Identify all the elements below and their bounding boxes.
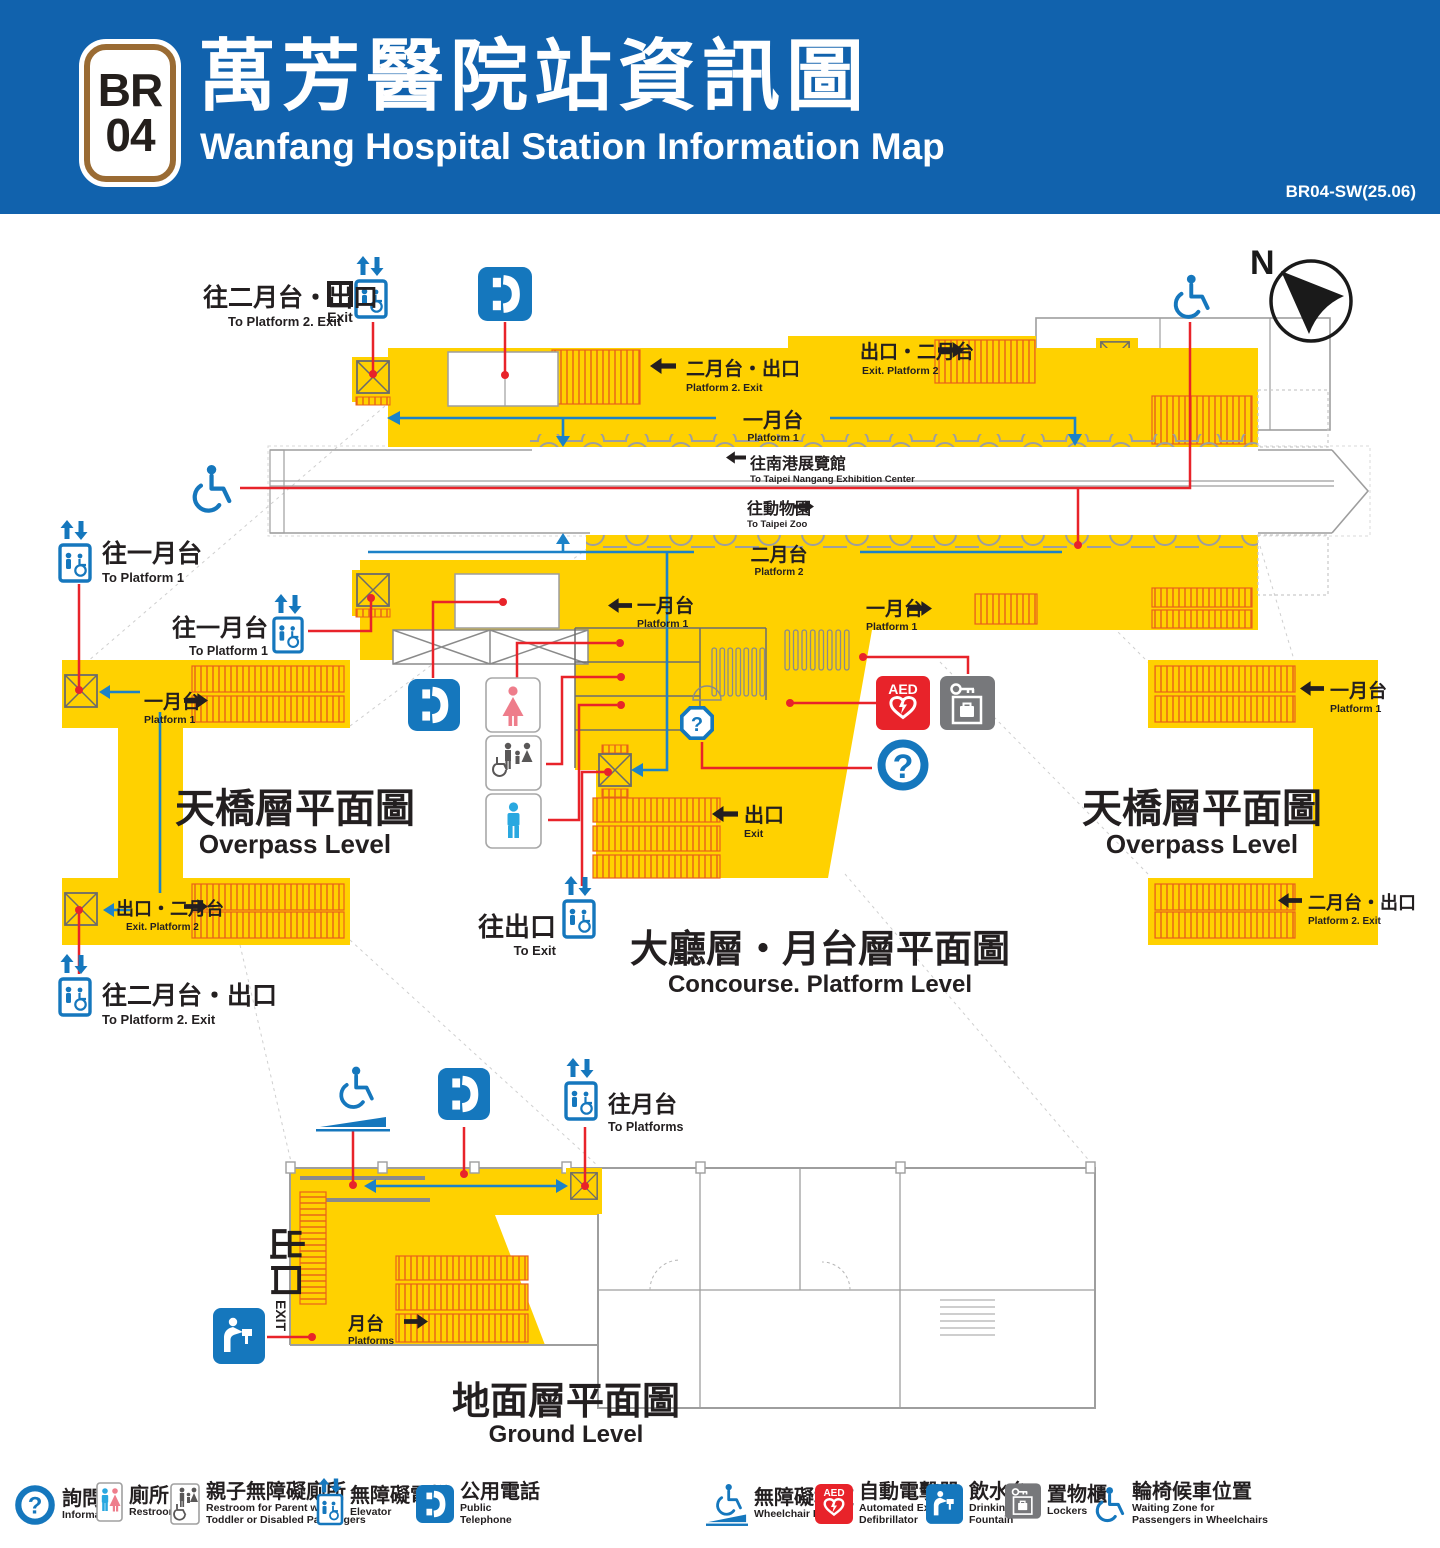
svg-text:To Taipei Nangang Exhibition C: To Taipei Nangang Exhibition Center	[750, 474, 915, 485]
svg-text:To Taipei Zoo: To Taipei Zoo	[747, 519, 808, 530]
svg-text:To Platform 2. Exit: To Platform 2. Exit	[102, 1012, 216, 1027]
svg-text:Platform 1: Platform 1	[1330, 703, 1382, 715]
accessible-family-restroom-icon	[486, 736, 541, 790]
svg-text:往南港展覽館: 往南港展覽館	[750, 454, 846, 473]
map-version: BR04-SW(25.06)	[1286, 182, 1416, 202]
svg-text:To Platform 1: To Platform 1	[189, 644, 268, 658]
svg-text:To Exit: To Exit	[514, 943, 557, 958]
svg-text:Platform 2. Exit: Platform 2. Exit	[686, 382, 763, 394]
svg-text:出口: 出口	[744, 804, 784, 827]
svg-text:一月台: 一月台	[743, 408, 803, 432]
svg-text:往二月台・出口: 往二月台・出口	[203, 283, 378, 312]
aed-icon: AED	[815, 1484, 853, 1524]
svg-text:二月台: 二月台	[750, 543, 807, 566]
svg-text:Concourse. Platform Level: Concourse. Platform Level	[668, 971, 972, 998]
line-code: BR	[98, 68, 162, 113]
wheelchair-ramp-icon	[706, 1482, 748, 1526]
wheelchair-waiting-icon	[1088, 1484, 1126, 1524]
svg-text:出口: 出口	[266, 1226, 307, 1298]
svg-text:Exit. Platform 2: Exit. Platform 2	[126, 922, 199, 933]
ground-title: 地面層平面圖	[452, 1381, 680, 1423]
svg-text:往月台: 往月台	[608, 1091, 677, 1117]
svg-text:出口・二月台: 出口・二月台	[116, 898, 224, 919]
station-code-badge: BR 04	[84, 44, 176, 182]
men-restroom-icon	[486, 794, 541, 848]
svg-text:Platform 2: Platform 2	[755, 567, 804, 578]
women-restroom-icon	[486, 678, 540, 732]
svg-text:往二月台・出口: 往二月台・出口	[102, 981, 277, 1010]
header-banner: BR 04 萬芳醫院站資訊圖 Wanfang Hospital Station …	[0, 0, 1440, 214]
svg-text:?: ?	[28, 1493, 43, 1520]
svg-text:Ground Level: Ground Level	[489, 1421, 644, 1448]
svg-text:往一月台: 往一月台	[102, 539, 202, 568]
compass-north-label: N	[1250, 244, 1275, 282]
svg-text:一月台: 一月台	[1330, 679, 1387, 702]
information-icon: ?	[14, 1484, 56, 1526]
legend-item-public-telephone: 公用電話 Public Telephone	[416, 1482, 540, 1526]
ground-level-map	[286, 1162, 1095, 1408]
overpass-right-title: 天橋層平面圖	[1082, 787, 1322, 831]
svg-text:Platform 1: Platform 1	[637, 618, 689, 630]
concourse-title: 大廳層・月台層平面圖	[630, 929, 1010, 971]
aed-icon: AED	[876, 676, 930, 730]
svg-text:Exit: Exit	[744, 828, 764, 840]
drinking-fountain-icon	[926, 1484, 963, 1524]
elevator-icon	[316, 1478, 344, 1526]
page-title-zh: 萬芳醫院站資訊圖	[198, 14, 870, 126]
restroom-icon	[96, 1482, 123, 1522]
svg-text:Platforms: Platforms	[348, 1336, 395, 1347]
svg-text:Overpass Level: Overpass Level	[199, 829, 391, 859]
page-title-en: Wanfang Hospital Station Information Map	[200, 126, 945, 168]
svg-text:出口・二月台: 出口・二月台	[860, 340, 974, 363]
station-map: Exit ? ?	[0, 0, 1440, 1548]
wheelchair-ramp-icon	[316, 1067, 390, 1132]
svg-text:EXIT: EXIT	[273, 1300, 289, 1332]
legend-item-restroom: 廁所 Restroom	[96, 1482, 178, 1522]
svg-text:二月台・出口: 二月台・出口	[1308, 892, 1416, 913]
svg-text:月台: 月台	[347, 1313, 384, 1334]
public-telephone-icon	[416, 1485, 454, 1523]
svg-text:?: ?	[893, 748, 914, 786]
accessible-family-restroom-icon	[170, 1483, 200, 1525]
svg-text:?: ?	[691, 714, 703, 736]
svg-text:AED: AED	[823, 1488, 844, 1499]
lockers-icon	[1005, 1482, 1041, 1520]
svg-text:二月台・出口: 二月台・出口	[686, 357, 800, 380]
svg-text:Platform 1: Platform 1	[144, 714, 196, 726]
svg-text:往動物園: 往動物園	[747, 499, 811, 518]
svg-text:一月台: 一月台	[866, 597, 923, 620]
svg-text:Exit. Platform 2: Exit. Platform 2	[862, 365, 939, 377]
svg-text:一月台: 一月台	[144, 690, 201, 713]
overpass-left-title: 天橋層平面圖	[175, 787, 415, 831]
svg-text:To Platforms: To Platforms	[608, 1120, 684, 1134]
svg-text:一月台: 一月台	[637, 594, 694, 617]
svg-text:To Platform 2. Exit: To Platform 2. Exit	[228, 314, 342, 329]
svg-text:Overpass Level: Overpass Level	[1106, 829, 1298, 859]
svg-text:往出口: 往出口	[478, 912, 556, 942]
drinking-fountain-icon	[213, 1308, 265, 1364]
svg-text:往一月台: 往一月台	[172, 614, 268, 642]
svg-text:To Platform 1: To Platform 1	[102, 570, 184, 585]
svg-text:Platform 1: Platform 1	[747, 432, 799, 444]
lockers-icon	[940, 676, 995, 730]
station-number: 04	[105, 113, 154, 158]
svg-text:Platform 2. Exit: Platform 2. Exit	[1308, 916, 1381, 927]
legend-item-wheelchair-waiting: 輪椅候車位置 Waiting Zone for Passengers in Wh…	[1088, 1482, 1268, 1526]
svg-text:AED: AED	[888, 681, 918, 697]
svg-text:Platform 1: Platform 1	[866, 621, 918, 633]
